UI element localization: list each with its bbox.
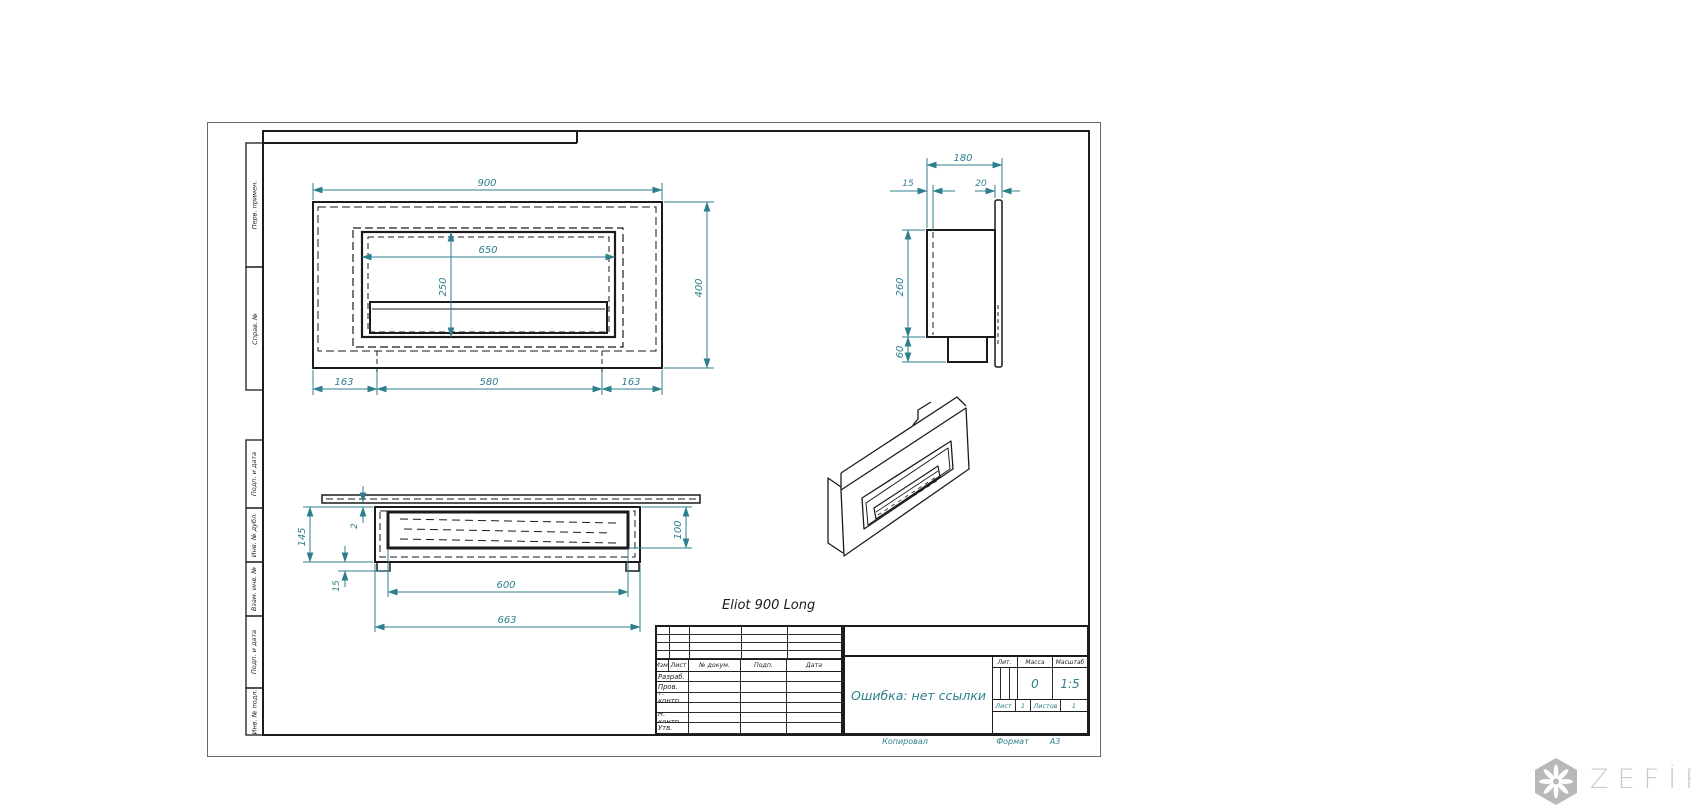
dim-front-opening-height: 250	[438, 277, 449, 296]
row-razrab: Разраб.	[657, 672, 689, 682]
col-list: Лист	[669, 660, 689, 671]
row-nkontr: Н. контр.	[657, 713, 689, 723]
section-view	[322, 495, 700, 571]
dim-side-bottom: 60	[895, 346, 906, 359]
sheet-value: 1	[1016, 700, 1031, 711]
mass-label: Масса	[1018, 657, 1053, 667]
side-view-dim-labels: 180 15 20 260 60	[895, 153, 987, 358]
row-prov: Пров.	[657, 682, 689, 692]
margin-label-perv-primen: Перв. примен.	[246, 143, 263, 267]
drawing-title: Eliot 900 Long	[722, 598, 922, 613]
dim-section-foot: 15	[332, 580, 342, 592]
scale-value: 1:5	[1053, 668, 1087, 699]
row-tkontr: Т. контр.	[657, 693, 689, 703]
dim-front-height: 400	[694, 278, 705, 297]
dim-section-depth: 100	[673, 520, 684, 539]
dim-side-inset: 15	[902, 179, 914, 189]
col-podp: Подп.	[741, 660, 787, 671]
dim-section-slot: 600	[496, 580, 515, 591]
side-view	[927, 200, 1002, 367]
title-block-header-row: Изм. Лист № докум. Подп. Дата	[657, 660, 841, 672]
sheets-label: Листов	[1031, 700, 1061, 711]
section-view-dim-labels: 145 2 15 600 663 100	[297, 520, 684, 626]
title-block-left: Изм. Лист № докум. Подп. Дата Разраб. Пр…	[655, 625, 843, 735]
document-name-cell: Ошибка: нет ссылки	[845, 657, 993, 733]
dim-front-left: 163	[334, 377, 353, 388]
dim-section-length: 663	[497, 615, 516, 626]
lit-mass-scale-header: Лит. Масса Масштаб	[992, 657, 1087, 668]
designation-cell	[845, 627, 1087, 657]
copied-label: Копировал	[860, 737, 950, 746]
margin-label-podp-data-1: Подп. и дата	[246, 440, 263, 508]
sheet-label: Лист	[992, 700, 1016, 711]
sheet-row: Лист 1 Листов 1	[992, 700, 1087, 712]
dim-front-width: 900	[477, 178, 496, 189]
dim-section-height: 145	[297, 527, 308, 546]
dim-section-gap: 2	[350, 523, 360, 529]
title-block-right: Ошибка: нет ссылки Лит. Масса Масштаб 0 …	[843, 625, 1089, 735]
dim-front-opening-width: 650	[478, 245, 497, 256]
front-view-dim-labels: 900 650 250 400 163 580 163	[334, 178, 705, 388]
zefire-brand-text: ZEFİRE	[1590, 764, 1691, 795]
col-data: Дата	[787, 660, 841, 671]
front-view	[313, 202, 662, 372]
format-value: А3	[1042, 737, 1068, 746]
title-block-signature-rows: Разраб. Пров. Т. контр. Н. контр. Утв.	[657, 672, 841, 734]
page: { "colors": { "line": "#1b1b1b", "dimens…	[0, 0, 1691, 810]
revision-rows	[657, 627, 841, 660]
lit-label: Лит.	[992, 657, 1018, 667]
sheets-value: 1	[1061, 700, 1087, 711]
dim-side-height: 260	[895, 277, 906, 296]
front-view-dimensions	[313, 183, 714, 395]
margin-label-sprav-no: Справ. №	[246, 267, 263, 390]
row-utv: Утв.	[657, 723, 689, 733]
dim-side-flange: 20	[975, 179, 987, 189]
dim-side-depth: 180	[953, 153, 972, 164]
zefire-logo-icon	[1532, 756, 1580, 806]
lit-mass-scale-values: 0 1:5	[992, 668, 1087, 700]
org-cell	[992, 712, 1087, 736]
margin-label-inv-podl: Инв. № подл.	[246, 688, 263, 735]
col-docnum: № докум.	[689, 660, 741, 671]
isometric-view	[828, 397, 969, 556]
dim-front-right: 163	[621, 377, 640, 388]
margin-label-vzam-inv: Взам. инв. №	[246, 562, 263, 616]
dim-front-center: 580	[479, 377, 498, 388]
margin-label-podp-data-2: Подп. и дата	[246, 616, 263, 688]
mass-value: 0	[1018, 668, 1053, 699]
format-label: Формат	[985, 737, 1040, 746]
row-blank	[657, 703, 689, 713]
scale-label: Масштаб	[1053, 657, 1087, 667]
col-izm: Изм.	[657, 660, 669, 671]
document-name: Ошибка: нет ссылки	[851, 688, 986, 703]
margin-label-inv-dubl: Инв. № дубл.	[246, 508, 263, 562]
